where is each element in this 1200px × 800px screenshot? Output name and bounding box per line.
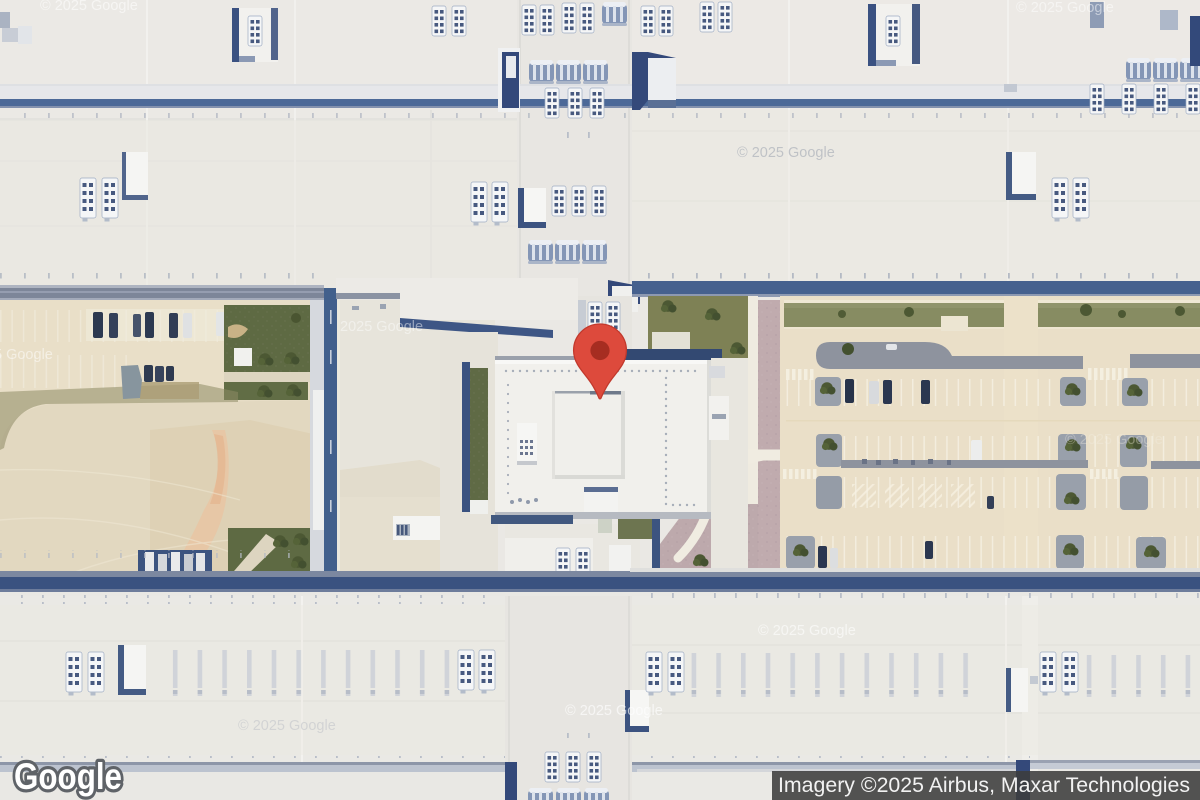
- svg-text:© 2025 Google: © 2025 Google: [40, 0, 138, 14]
- svg-text:© 2025 Google: © 2025 Google: [1016, 0, 1114, 16]
- svg-text:© 2025 Google: © 2025 Google: [565, 703, 663, 719]
- svg-text:© 2025 Google: © 2025 Google: [737, 145, 835, 161]
- svg-text:© 2025 Google: © 2025 Google: [758, 623, 856, 639]
- svg-text:2025 Google: 2025 Google: [340, 319, 423, 335]
- svg-text:5 Google: 5 Google: [0, 347, 53, 363]
- svg-text:Google: Google: [14, 756, 122, 797]
- svg-text:© 2025 Google: © 2025 Google: [238, 718, 336, 734]
- svg-text:© 2025 Google: © 2025 Google: [1065, 432, 1163, 448]
- svg-text:Imagery ©2025 Airbus, Maxar Te: Imagery ©2025 Airbus, Maxar Technologies: [778, 773, 1190, 797]
